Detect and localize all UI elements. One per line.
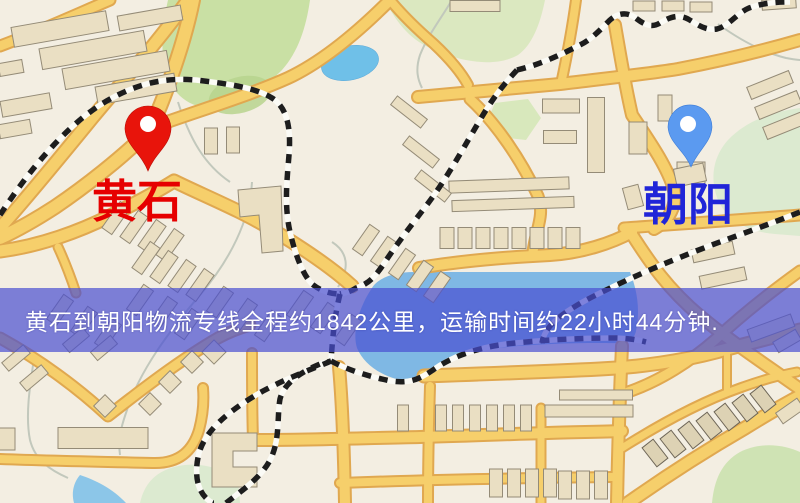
building [504,405,515,431]
building [487,405,498,431]
building [544,469,557,497]
building [560,390,633,400]
building [662,1,684,11]
route-info-text: 黄石到朝阳物流专线全程约1842公里，运输时间约22小时44分钟. [25,303,719,337]
building [690,2,712,12]
building [566,228,580,249]
building [622,184,643,209]
building [530,228,544,249]
building [521,405,532,431]
building [0,60,24,77]
building [577,471,590,499]
building [548,228,562,249]
building [658,95,672,121]
building [453,405,464,431]
building [494,228,508,249]
building [595,471,608,499]
building [0,119,32,138]
building [490,469,503,497]
building [227,127,240,153]
building [629,122,647,154]
building [352,224,379,255]
building [508,469,521,497]
building [403,136,440,168]
building [450,1,500,12]
building [458,228,472,249]
building [205,128,218,154]
building [440,228,454,249]
building [0,428,15,450]
c-shaped-building [212,433,257,487]
building [0,93,52,117]
building [699,267,747,289]
building [526,469,539,497]
building [436,405,447,431]
building [543,99,580,113]
building [512,228,526,249]
building [476,228,490,249]
logistics-map-page: 黄石到朝阳物流专线全程约1842公里，运输时间约22小时44分钟. 黄石 朝阳 [0,0,800,503]
route-info-banner: 黄石到朝阳物流专线全程约1842公里，运输时间约22小时44分钟. [0,288,800,352]
building [452,196,574,211]
building [633,1,655,11]
building [398,405,409,431]
building [58,428,148,449]
building [470,405,481,431]
building [559,471,572,499]
building [449,177,569,193]
map-canvas [0,0,800,503]
building [545,405,633,417]
building [544,131,577,144]
building [588,98,605,173]
building [20,365,49,391]
lake-bottom-left [73,475,126,503]
